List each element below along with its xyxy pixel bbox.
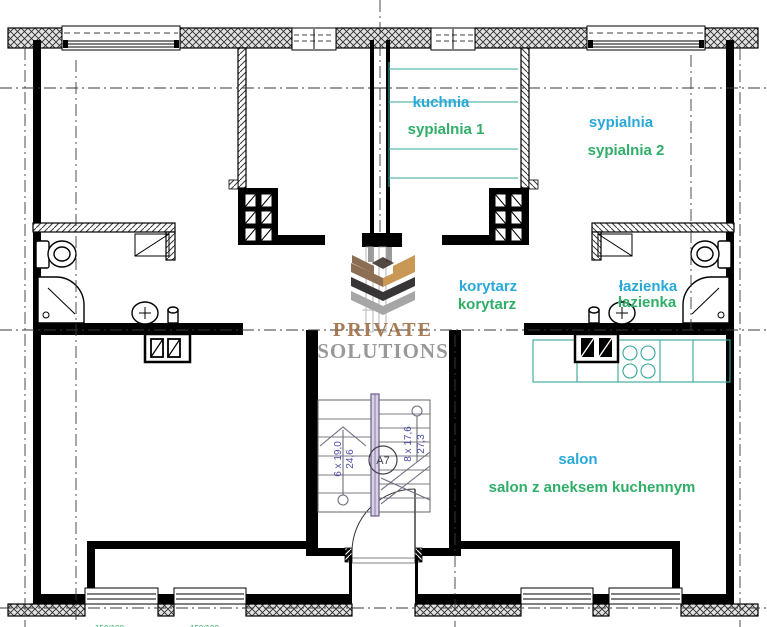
label-sypialnia: sypialnia	[589, 114, 654, 131]
label-kuchnia: kuchnia	[413, 94, 470, 111]
label-korytarz: korytarz	[459, 278, 517, 295]
label-korytarz-2: korytarz	[458, 296, 516, 313]
stair-marker-label: A7	[376, 455, 389, 467]
label-sypialnia-2: sypialnia 2	[588, 142, 665, 159]
stair-dim-right-width: 27,3	[416, 434, 427, 454]
label-salon: salon	[558, 451, 597, 468]
logo-text-solutions: SOLUTIONS	[317, 339, 449, 363]
floor-plan-drawing: A7 6 x 19,0 24,6 8 x 17,6 27,3	[0, 0, 767, 627]
label-salon-aneks: salon z aneksem kuchennym	[489, 479, 696, 496]
stair-dim-left-steps: 6 x 19,0	[333, 441, 344, 477]
floor-plan: A7 6 x 19,0 24,6 8 x 17,6 27,3	[0, 0, 767, 627]
stair-dim-right-steps: 8 x 17,6	[403, 426, 414, 462]
label-lazienka: łazienka	[619, 278, 678, 295]
stair-dim-left-width: 24,6	[345, 449, 356, 469]
vent-niche-right	[575, 334, 618, 362]
logo-text-private: PRIVATE	[333, 319, 433, 341]
label-lazienka-2: łazienka	[618, 294, 677, 311]
label-sypialnia-1: sypialnia 1	[408, 121, 485, 138]
vent-niche-left	[145, 334, 190, 362]
